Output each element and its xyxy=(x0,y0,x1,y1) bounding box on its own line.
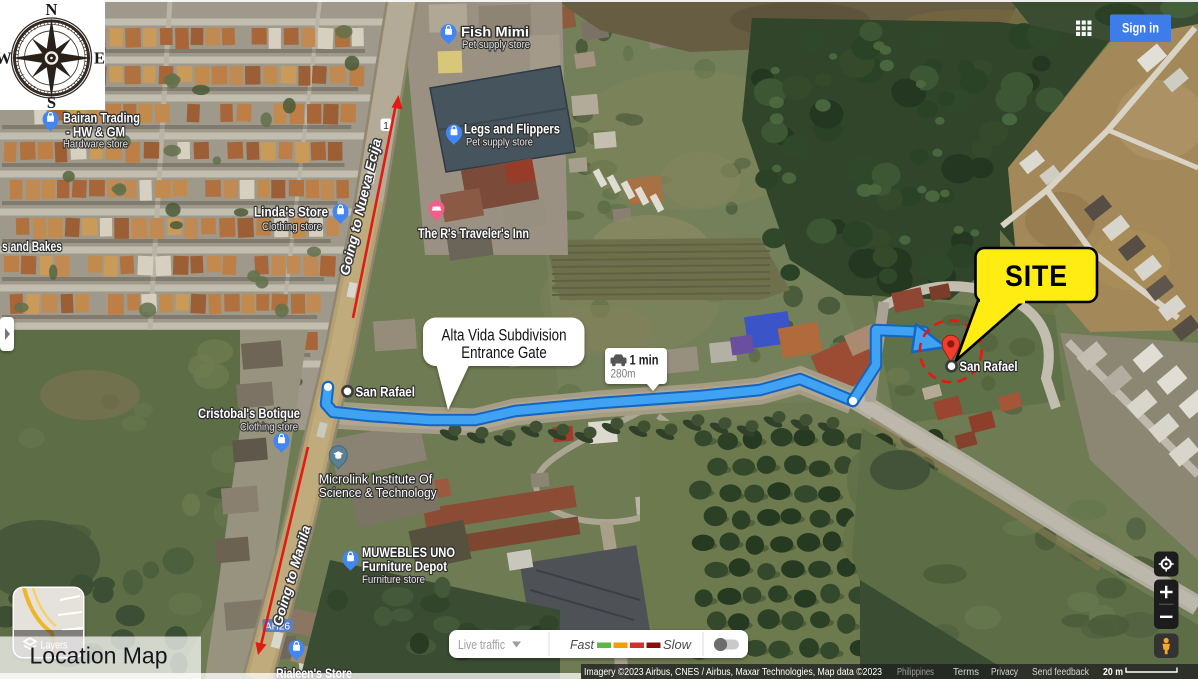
svg-text:Bairan Trading: Bairan Trading xyxy=(63,111,140,126)
svg-text:Linda's Store: Linda's Store xyxy=(254,205,328,220)
svg-text:Clothing store: Clothing store xyxy=(262,221,322,233)
svg-text:Imagery ©2023 Airbus, CNES / A: Imagery ©2023 Airbus, CNES / Airbus, Max… xyxy=(584,667,882,678)
svg-text:Legs and Flippers: Legs and Flippers xyxy=(464,121,560,137)
svg-text:Privacy: Privacy xyxy=(991,667,1018,678)
svg-text:1 min: 1 min xyxy=(630,353,659,368)
svg-text:1: 1 xyxy=(383,121,389,132)
svg-text:Fast: Fast xyxy=(570,637,595,652)
svg-text:Clothing store: Clothing store xyxy=(240,422,298,434)
svg-text:Furniture store: Furniture store xyxy=(362,574,425,586)
svg-text:280m: 280m xyxy=(611,367,636,381)
svg-text:Philippines: Philippines xyxy=(897,667,934,678)
svg-text:MUWEBLES UNO: MUWEBLES UNO xyxy=(362,545,455,560)
svg-text:S: S xyxy=(47,93,56,112)
svg-text:San Rafael: San Rafael xyxy=(356,384,416,400)
svg-text:SITE: SITE xyxy=(1005,260,1068,293)
svg-text:E: E xyxy=(94,49,105,68)
svg-text:Pet supply store: Pet supply store xyxy=(462,39,530,51)
svg-text:Slow: Slow xyxy=(663,637,693,652)
svg-text:Sign in: Sign in xyxy=(1122,21,1159,36)
svg-text:Science & Technology: Science & Technology xyxy=(319,485,437,500)
svg-text:Entrance Gate: Entrance Gate xyxy=(461,344,547,362)
svg-text:San Rafael: San Rafael xyxy=(960,358,1018,374)
svg-text:N: N xyxy=(46,0,58,19)
svg-text:Location Map: Location Map xyxy=(30,643,168,669)
svg-text:Terms: Terms xyxy=(953,667,979,678)
svg-text:s and Bakes: s and Bakes xyxy=(2,239,62,254)
svg-text:Cristobal's Botique: Cristobal's Botique xyxy=(198,406,300,421)
svg-text:Pet supply store: Pet supply store xyxy=(466,137,533,149)
svg-text:Live traffic: Live traffic xyxy=(458,637,505,652)
svg-text:Hardware store: Hardware store xyxy=(63,139,128,151)
svg-text:- HW & GM: - HW & GM xyxy=(66,125,125,140)
svg-text:Send feedback: Send feedback xyxy=(1032,667,1090,678)
svg-text:The R's Traveler's Inn: The R's Traveler's Inn xyxy=(418,226,529,241)
svg-text:20 m: 20 m xyxy=(1103,666,1123,678)
svg-text:W: W xyxy=(0,49,12,68)
svg-text:Fish Mimi: Fish Mimi xyxy=(461,25,529,40)
svg-text:Alta Vida Subdivision: Alta Vida Subdivision xyxy=(442,327,567,345)
svg-text:Furniture Depot: Furniture Depot xyxy=(362,559,447,574)
